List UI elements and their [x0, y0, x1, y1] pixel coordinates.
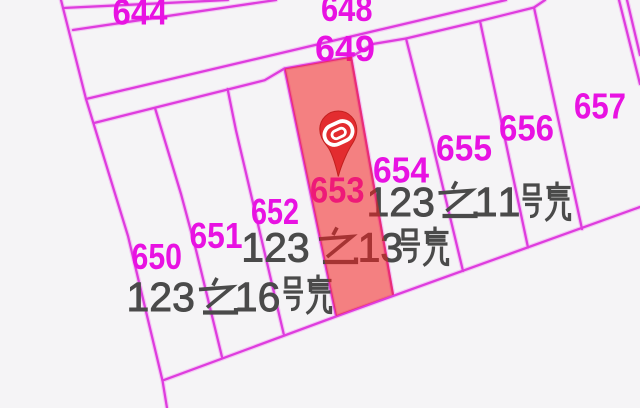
svg-text:657: 657	[574, 86, 626, 127]
svg-text:656: 656	[499, 108, 554, 149]
svg-text:651: 651	[190, 215, 243, 256]
svg-text:1: 1	[235, 274, 258, 320]
svg-text:123: 123	[127, 274, 195, 320]
svg-text:6: 6	[258, 274, 281, 320]
svg-text:650: 650	[132, 236, 183, 277]
svg-text:648: 648	[321, 0, 373, 29]
svg-text:652: 652	[251, 191, 299, 232]
svg-text:1: 1	[498, 179, 521, 225]
svg-text:1: 1	[475, 179, 498, 225]
svg-text:655: 655	[436, 128, 492, 169]
svg-text:654: 654	[373, 150, 429, 191]
svg-text:644: 644	[113, 0, 168, 33]
